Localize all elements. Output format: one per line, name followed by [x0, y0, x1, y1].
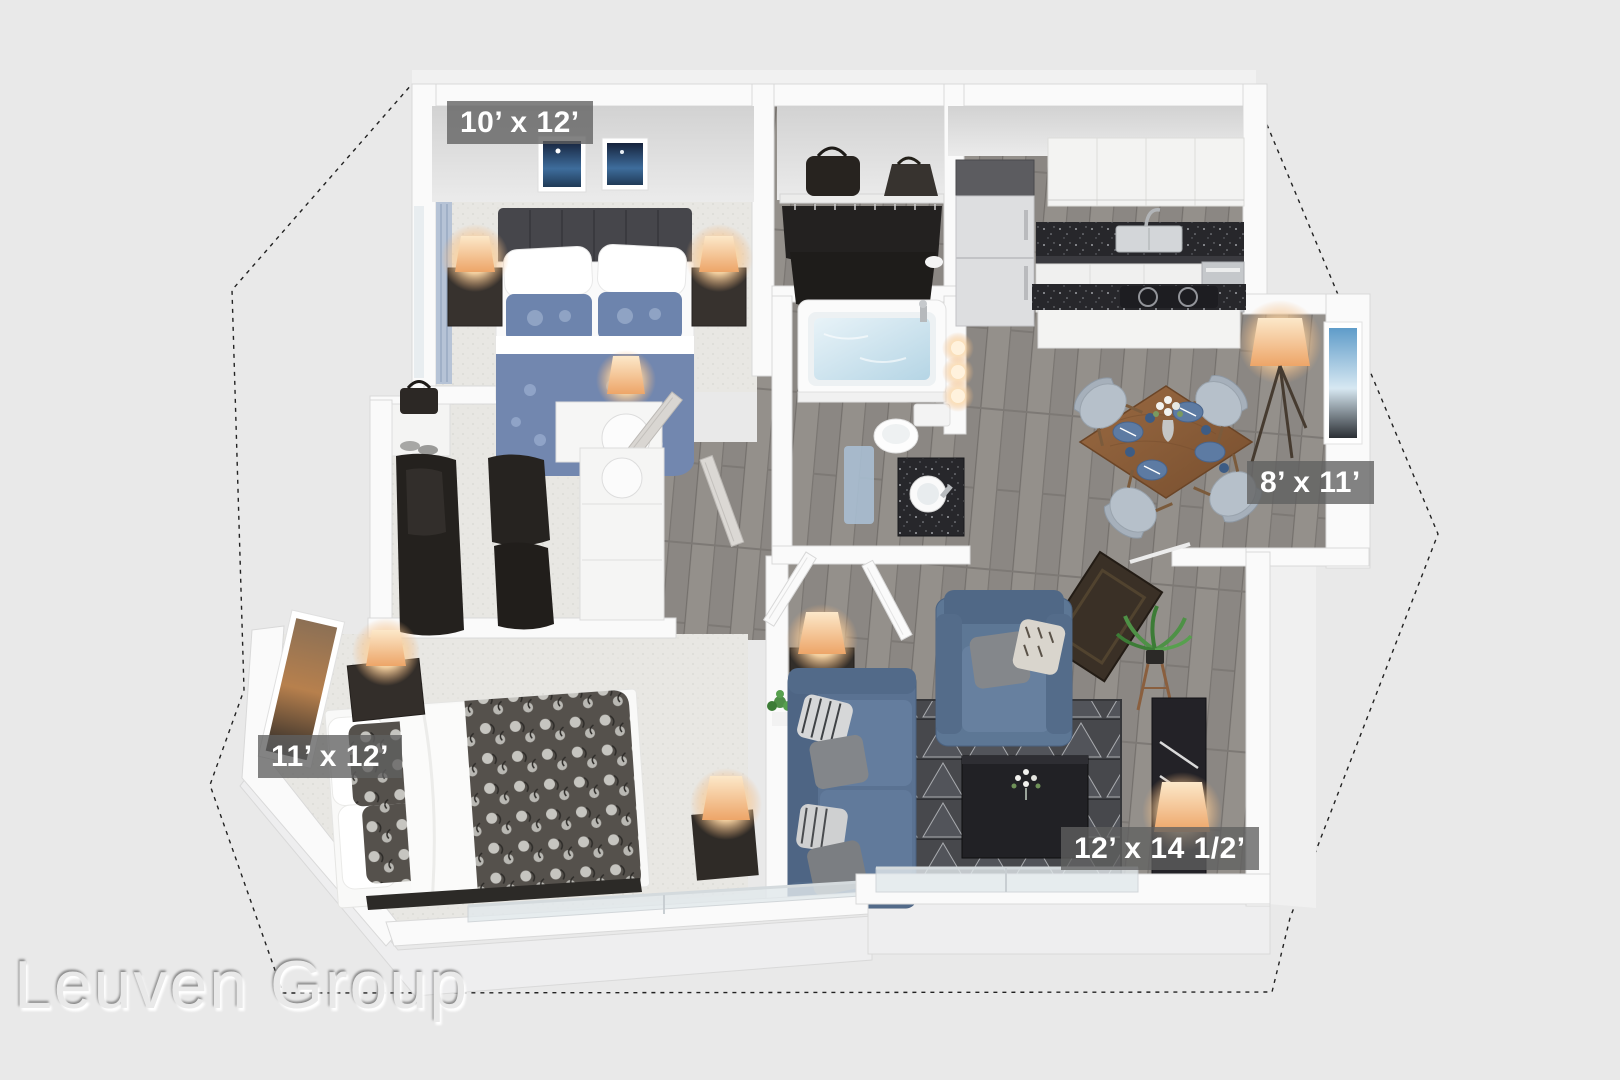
- vanity-lights: [942, 332, 974, 412]
- upper-cabinets: [1048, 138, 1244, 206]
- foot-lamp: [596, 350, 656, 410]
- bed-queen-floral: [325, 689, 650, 910]
- bath-mat: [844, 446, 874, 524]
- kitchen-island: [1032, 284, 1246, 348]
- refrigerator: [956, 160, 1034, 326]
- watermark-logo-text: Leuven Group: [14, 946, 469, 1024]
- vanity-sink: [898, 458, 964, 536]
- room-dimension-label-living: 12’ x 14 1/2’: [1061, 827, 1259, 870]
- entry-closet: [777, 106, 944, 311]
- room-dimension-label-bedroom-bottom: 11’ x 12’: [258, 735, 402, 778]
- table-lamp: [352, 618, 420, 686]
- tub-faucet: [920, 306, 927, 322]
- bathtub: [798, 300, 946, 402]
- armchair-blue: [936, 590, 1072, 746]
- shoes: [400, 441, 420, 451]
- room-dimension-label-dining: 8’ x 11’: [1247, 461, 1374, 504]
- handbag: [884, 164, 938, 196]
- table-lamp-left: [441, 224, 509, 292]
- duffel-bag: [806, 156, 860, 196]
- cooktop: [1120, 286, 1218, 308]
- floor-plan-rendering: [0, 0, 1620, 1080]
- wall-art-frame: [1324, 322, 1362, 444]
- closet-stool: [602, 458, 642, 498]
- nightstand-right-with-lamp: [690, 768, 762, 881]
- table-lamp-right: [685, 224, 753, 292]
- floor-plan-canvas: 10’ x 12’ 8’ x 11’ 11’ x 12’ 12’ x 14 1/…: [0, 0, 1620, 1080]
- shopping-bag: [400, 388, 438, 414]
- hanging-clothes-rack-center: [488, 454, 550, 545]
- kitchen: [948, 106, 1246, 348]
- room-dimension-label-bedroom-top: 10’ x 12’: [447, 101, 593, 144]
- wall-sconce: [925, 256, 943, 268]
